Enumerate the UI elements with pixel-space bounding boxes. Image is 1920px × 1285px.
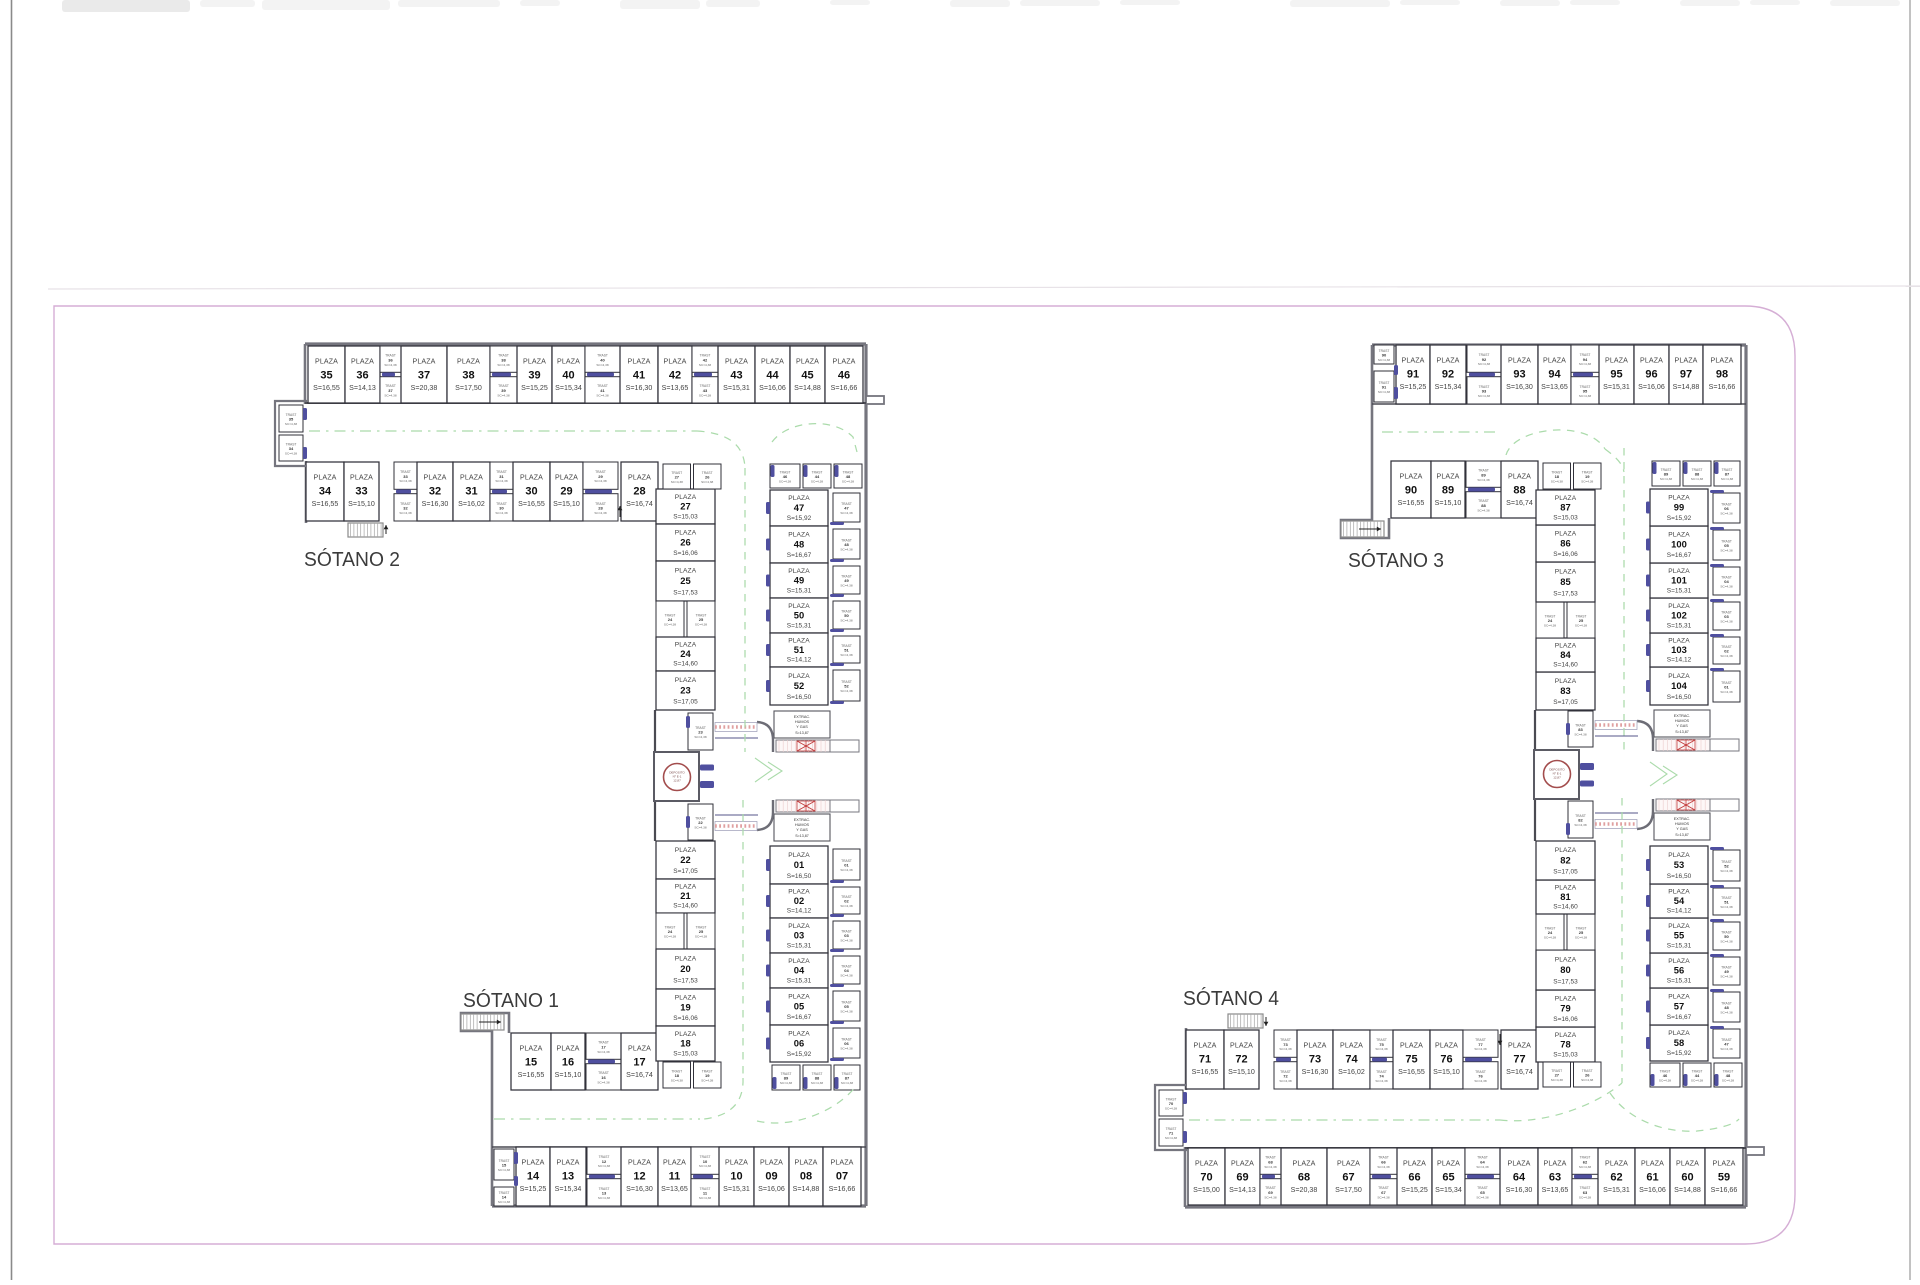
svg-text:70: 70 (1200, 1172, 1212, 1184)
svg-text:96: 96 (1645, 369, 1657, 381)
svg-text:SC=4,38: SC=4,38 (1691, 1079, 1703, 1083)
svg-text:S=16,06: S=16,06 (759, 384, 786, 392)
svg-text:S=15,31: S=15,31 (787, 622, 812, 629)
svg-text:S=15,25: S=15,25 (1400, 383, 1427, 391)
svg-text:SC=4,38: SC=4,38 (840, 904, 852, 908)
svg-text:PLAZA: PLAZA (1668, 673, 1690, 680)
svg-text:19: 19 (1585, 474, 1590, 479)
svg-text:02: 02 (794, 895, 804, 906)
svg-text:10: 10 (703, 1159, 708, 1164)
svg-text:68: 68 (1298, 1172, 1310, 1184)
svg-text:SC=4,38: SC=4,38 (840, 1047, 852, 1051)
svg-text:59: 59 (1718, 1172, 1730, 1184)
svg-text:22: 22 (698, 820, 703, 825)
svg-text:S=15,03: S=15,03 (673, 1050, 698, 1057)
svg-text:SC=4,38: SC=4,38 (497, 394, 509, 398)
svg-text:SC=4,38: SC=4,38 (695, 935, 707, 939)
svg-text:60: 60 (1681, 1172, 1693, 1184)
svg-text:S=16,74: S=16,74 (1506, 1068, 1533, 1076)
svg-text:HUMOS: HUMOS (795, 720, 810, 724)
svg-text:S=15,92: S=15,92 (1667, 515, 1692, 522)
svg-text:102: 102 (1671, 609, 1687, 620)
svg-text:PLAZA: PLAZA (788, 1031, 810, 1038)
svg-text:S=16,55: S=16,55 (518, 500, 545, 508)
svg-text:SC=4,38: SC=4,38 (1720, 620, 1732, 624)
svg-text:69: 69 (1268, 1190, 1273, 1195)
svg-text:77: 77 (1513, 1054, 1525, 1066)
svg-text:SC=4,38: SC=4,38 (596, 394, 608, 398)
svg-text:PLAZA: PLAZA (1437, 1160, 1460, 1168)
svg-text:PLAZA: PLAZA (1675, 357, 1698, 365)
svg-text:PLAZA: PLAZA (457, 358, 480, 366)
svg-text:38: 38 (462, 370, 474, 382)
svg-text:SC=4,38: SC=4,38 (842, 480, 854, 484)
svg-text:S=15,03: S=15,03 (1553, 514, 1578, 521)
svg-text:15: 15 (525, 1057, 537, 1069)
svg-text:35: 35 (320, 370, 332, 382)
svg-text:SC=4,38: SC=4,38 (840, 1010, 852, 1014)
svg-text:44: 44 (766, 370, 779, 382)
svg-text:SC=4,38: SC=4,38 (384, 394, 396, 398)
svg-text:13: 13 (602, 1191, 607, 1196)
svg-text:79: 79 (1560, 1003, 1570, 1014)
svg-text:S=15,10: S=15,10 (1433, 1068, 1460, 1076)
svg-text:57: 57 (1674, 1001, 1684, 1012)
svg-text:EXTRAC.: EXTRAC. (1674, 817, 1690, 821)
svg-text:66: 66 (1381, 1159, 1386, 1164)
svg-text:34: 34 (319, 486, 332, 498)
svg-text:S=15,25: S=15,25 (520, 1185, 547, 1193)
svg-text:SC=4,38: SC=4,38 (498, 1168, 510, 1172)
svg-text:S=16,55: S=16,55 (312, 500, 339, 508)
svg-text:PLAZA: PLAZA (1304, 1042, 1327, 1050)
svg-text:S=15,92: S=15,92 (1667, 1050, 1692, 1057)
svg-text:103: 103 (1671, 644, 1687, 655)
svg-text:PLAZA: PLAZA (1668, 852, 1690, 859)
svg-text:SC=4,38: SC=4,38 (840, 511, 852, 515)
svg-text:PLAZA: PLAZA (675, 995, 697, 1002)
svg-text:S=15,10: S=15,10 (348, 500, 375, 508)
svg-text:23: 23 (680, 685, 690, 696)
svg-text:PLAZA: PLAZA (1400, 1042, 1423, 1050)
svg-text:S=15,31: S=15,31 (787, 977, 812, 984)
svg-text:48: 48 (844, 542, 849, 547)
svg-text:32: 32 (429, 486, 441, 498)
svg-text:S=15,10: S=15,10 (1435, 499, 1462, 507)
svg-text:SC=4,38: SC=4,38 (1720, 654, 1732, 658)
svg-text:91: 91 (1382, 385, 1387, 390)
svg-text:S=14,60: S=14,60 (1553, 662, 1578, 669)
svg-text:31: 31 (499, 474, 504, 479)
svg-text:PLAZA: PLAZA (1555, 996, 1577, 1003)
svg-text:48: 48 (1724, 1005, 1729, 1010)
svg-text:S=16,06: S=16,06 (758, 1185, 785, 1193)
svg-text:PLAZA: PLAZA (1340, 1042, 1363, 1050)
svg-text:S=16,06: S=16,06 (1639, 1186, 1666, 1194)
svg-text:SC=4,38: SC=4,38 (699, 363, 711, 367)
svg-text:62: 62 (1583, 1159, 1588, 1164)
svg-text:SC=4,38: SC=4,38 (1720, 1047, 1732, 1051)
svg-text:Y GAS: Y GAS (1676, 724, 1688, 728)
svg-text:09: 09 (765, 1171, 777, 1183)
svg-text:98: 98 (1716, 369, 1728, 381)
svg-text:S=16,50: S=16,50 (787, 694, 812, 701)
svg-text:S=15,25: S=15,25 (1401, 1186, 1428, 1194)
svg-text:SC=4,38: SC=4,38 (598, 1164, 610, 1168)
svg-text:61: 61 (1646, 1172, 1658, 1184)
svg-text:04: 04 (1724, 579, 1729, 584)
svg-text:78: 78 (1560, 1038, 1570, 1049)
svg-text:88: 88 (1695, 472, 1700, 477)
svg-text:92: 92 (1482, 357, 1487, 362)
svg-text:65: 65 (1442, 1172, 1454, 1184)
svg-text:17: 17 (601, 1044, 606, 1049)
svg-text:S=17,53: S=17,53 (1553, 591, 1578, 598)
svg-text:19: 19 (680, 1002, 690, 1013)
svg-text:03: 03 (844, 933, 849, 938)
svg-text:12,87: 12,87 (1553, 776, 1561, 780)
svg-text:PLAZA: PLAZA (1508, 1160, 1531, 1168)
svg-text:S=17,50: S=17,50 (1335, 1186, 1362, 1194)
svg-text:PLAZA: PLAZA (351, 358, 374, 366)
svg-text:80: 80 (1560, 964, 1570, 975)
svg-text:37: 37 (418, 370, 430, 382)
svg-text:104: 104 (1671, 680, 1687, 691)
svg-text:S=13,87: S=13,87 (795, 731, 809, 735)
svg-text:S=15,31: S=15,31 (1667, 587, 1692, 594)
svg-text:SC=4,38: SC=4,38 (399, 479, 411, 483)
svg-text:SC=4,38: SC=4,38 (840, 974, 852, 978)
svg-text:25: 25 (699, 617, 704, 622)
svg-text:69: 69 (1236, 1172, 1248, 1184)
svg-text:37: 37 (388, 388, 393, 393)
svg-text:SC=4,38: SC=4,38 (1378, 358, 1390, 362)
svg-text:S=16,55: S=16,55 (1398, 499, 1425, 507)
svg-text:SC=4,38: SC=4,38 (1165, 1107, 1177, 1111)
svg-text:S=15,31: S=15,31 (723, 384, 750, 392)
svg-text:S=15,92: S=15,92 (787, 515, 812, 522)
svg-text:HUMOS: HUMOS (1675, 822, 1690, 826)
svg-text:PLAZA: PLAZA (1435, 1042, 1458, 1050)
svg-text:S=13,87: S=13,87 (1675, 730, 1689, 734)
svg-text:EXTRAC.: EXTRAC. (794, 818, 810, 822)
svg-text:S=13,65: S=13,65 (1542, 1186, 1569, 1194)
svg-text:27: 27 (1555, 1073, 1560, 1078)
svg-text:PLAZA: PLAZA (1555, 956, 1577, 963)
svg-text:PLAZA: PLAZA (725, 358, 748, 366)
svg-text:88: 88 (815, 1076, 820, 1081)
svg-text:SC=4,38: SC=4,38 (1551, 1078, 1563, 1082)
svg-text:SC=4,38: SC=4,38 (597, 1050, 609, 1054)
svg-text:S=16,67: S=16,67 (787, 552, 812, 559)
svg-text:08: 08 (800, 1171, 812, 1183)
svg-text:SC=4,38: SC=4,38 (1720, 940, 1732, 944)
svg-text:SC=4,38: SC=4,38 (701, 480, 713, 484)
svg-text:S=14,88: S=14,88 (793, 1185, 820, 1193)
svg-text:SC=4,38: SC=4,38 (840, 868, 852, 872)
svg-text:SC=4,38: SC=4,38 (1377, 1165, 1389, 1169)
svg-text:SC=4,38: SC=4,38 (664, 623, 676, 627)
svg-text:16: 16 (601, 1075, 606, 1080)
svg-text:PLAZA: PLAZA (664, 358, 687, 366)
svg-text:SC=4,38: SC=4,38 (495, 479, 507, 483)
svg-text:SC=4,38: SC=4,38 (1264, 1195, 1276, 1199)
svg-text:13: 13 (562, 1171, 574, 1183)
svg-text:76: 76 (1478, 1074, 1483, 1079)
svg-text:95: 95 (1583, 389, 1588, 394)
svg-text:45: 45 (801, 370, 813, 382)
svg-text:EXTRAC.: EXTRAC. (1674, 714, 1690, 718)
svg-text:S=17,50: S=17,50 (455, 384, 482, 392)
svg-text:SC=4,38: SC=4,38 (598, 1196, 610, 1200)
svg-text:PLAZA: PLAZA (788, 673, 810, 680)
svg-text:S=14,13: S=14,13 (1229, 1186, 1256, 1194)
svg-text:82: 82 (1578, 818, 1583, 823)
svg-text:93: 93 (1482, 389, 1487, 394)
svg-text:S=17,05: S=17,05 (1553, 699, 1578, 706)
svg-text:39: 39 (528, 370, 540, 382)
svg-text:66: 66 (1408, 1172, 1420, 1184)
svg-text:49: 49 (1724, 969, 1729, 974)
svg-text:SC=4,38: SC=4,38 (285, 422, 297, 426)
svg-text:SC=4,38: SC=4,38 (495, 511, 507, 515)
svg-text:38: 38 (501, 357, 506, 362)
svg-text:S=16,50: S=16,50 (1667, 873, 1692, 880)
svg-text:S=15,03: S=15,03 (1553, 1051, 1578, 1058)
svg-text:S=13,87: S=13,87 (795, 834, 809, 838)
svg-text:PLAZA: PLAZA (1713, 1160, 1736, 1168)
svg-text:PLAZA: PLAZA (1555, 847, 1577, 854)
svg-text:47: 47 (794, 502, 804, 513)
svg-text:PLAZA: PLAZA (1508, 357, 1531, 365)
svg-text:SC=4,38: SC=4,38 (694, 826, 706, 830)
svg-text:24: 24 (1548, 930, 1553, 935)
svg-text:PLAZA: PLAZA (1437, 357, 1460, 365)
svg-text:SC=4,38: SC=4,38 (384, 363, 396, 367)
svg-text:PLAZA: PLAZA (1555, 531, 1577, 538)
svg-text:32: 32 (403, 506, 408, 511)
svg-text:S=15,31: S=15,31 (1667, 977, 1692, 984)
svg-text:SC=4,38: SC=4,38 (1721, 477, 1733, 481)
svg-text:43: 43 (730, 370, 742, 382)
svg-text:PLAZA: PLAZA (1676, 1160, 1699, 1168)
svg-text:PLAZA: PLAZA (833, 358, 856, 366)
svg-text:SÓTANO 4: SÓTANO 4 (1183, 987, 1279, 1010)
svg-text:65: 65 (1480, 1190, 1485, 1195)
svg-text:87: 87 (1560, 501, 1570, 512)
svg-text:S=14,88: S=14,88 (1674, 1186, 1701, 1194)
svg-text:PLAZA: PLAZA (663, 1159, 686, 1167)
svg-text:PLAZA: PLAZA (557, 1045, 580, 1053)
svg-text:SC=4,38: SC=4,38 (1544, 936, 1556, 940)
svg-text:47: 47 (844, 506, 849, 511)
svg-text:SC=4,38: SC=4,38 (285, 452, 297, 456)
svg-text:75: 75 (1405, 1054, 1417, 1066)
svg-text:SC=4,38: SC=4,38 (1660, 477, 1672, 481)
svg-text:52: 52 (1724, 864, 1729, 869)
svg-text:Y GAS: Y GAS (796, 725, 808, 729)
svg-text:85: 85 (1560, 576, 1570, 587)
svg-text:36: 36 (388, 357, 393, 362)
svg-text:S=15,10: S=15,10 (555, 1071, 582, 1079)
svg-text:SC=4,38: SC=4,38 (840, 939, 852, 943)
svg-text:24: 24 (1548, 618, 1553, 623)
svg-text:76: 76 (1440, 1054, 1452, 1066)
svg-text:51: 51 (794, 644, 804, 655)
svg-text:S=16,50: S=16,50 (787, 873, 812, 880)
svg-text:SC=4,38: SC=4,38 (811, 1081, 823, 1085)
svg-text:06: 06 (844, 1041, 849, 1046)
svg-text:63: 63 (1583, 1190, 1588, 1195)
svg-text:50: 50 (1724, 934, 1729, 939)
svg-text:100: 100 (1671, 539, 1687, 550)
svg-text:02: 02 (1724, 649, 1729, 654)
svg-text:PLAZA: PLAZA (1231, 1160, 1254, 1168)
svg-text:S=14,12: S=14,12 (1667, 908, 1692, 915)
svg-text:SC=4,38: SC=4,38 (699, 1196, 711, 1200)
svg-text:S=15,03: S=15,03 (673, 513, 698, 520)
svg-text:SC=4,38: SC=4,38 (695, 623, 707, 627)
svg-text:67: 67 (1342, 1172, 1354, 1184)
svg-text:SC=4,38: SC=4,38 (1478, 394, 1490, 398)
svg-text:16: 16 (562, 1057, 574, 1069)
svg-text:83: 83 (1578, 727, 1583, 732)
svg-text:S=15,34: S=15,34 (555, 384, 582, 392)
svg-text:PLAZA: PLAZA (557, 1159, 580, 1167)
svg-text:52: 52 (794, 680, 804, 691)
svg-text:S=16,55: S=16,55 (1398, 1068, 1425, 1076)
svg-text:S=16,55: S=16,55 (313, 384, 340, 392)
svg-text:SC=4,38: SC=4,38 (1474, 1047, 1486, 1051)
svg-text:PLAZA: PLAZA (760, 1159, 783, 1167)
svg-text:SC=4,38: SC=4,38 (597, 1080, 609, 1084)
svg-text:72: 72 (1283, 1074, 1288, 1079)
svg-text:47: 47 (1724, 1042, 1729, 1047)
svg-text:S=15,31: S=15,31 (1603, 383, 1630, 391)
svg-text:S=16,66: S=16,66 (829, 1185, 856, 1193)
svg-text:S=16,66: S=16,66 (1709, 383, 1736, 391)
svg-text:SC=4,38: SC=4,38 (1720, 585, 1732, 589)
svg-text:SC=4,38: SC=4,38 (1579, 362, 1591, 366)
svg-text:05: 05 (794, 1001, 804, 1012)
svg-text:PLAZA: PLAZA (788, 532, 810, 539)
svg-text:56: 56 (1674, 964, 1684, 975)
svg-text:S=17,05: S=17,05 (673, 868, 698, 875)
svg-text:PLAZA: PLAZA (761, 358, 784, 366)
svg-text:SC=4,38: SC=4,38 (694, 735, 706, 739)
svg-text:02: 02 (844, 899, 849, 904)
svg-text:PLAZA: PLAZA (523, 358, 546, 366)
svg-text:SC=4,38: SC=4,38 (1720, 1011, 1732, 1015)
svg-text:SC=4,38: SC=4,38 (699, 394, 711, 398)
svg-text:19: 19 (705, 1073, 710, 1078)
svg-text:SC=4,38: SC=4,38 (841, 1081, 853, 1085)
svg-text:30: 30 (525, 486, 537, 498)
svg-text:SC=4,38: SC=4,38 (1477, 509, 1489, 513)
svg-text:PLAZA: PLAZA (1403, 1160, 1426, 1168)
svg-text:PLAZA: PLAZA (1544, 1160, 1567, 1168)
svg-text:PLAZA: PLAZA (1605, 1160, 1628, 1168)
svg-text:SC=4,38: SC=4,38 (1659, 1079, 1671, 1083)
svg-text:33: 33 (355, 486, 367, 498)
svg-text:S=15,00: S=15,00 (1193, 1186, 1220, 1194)
svg-text:SC=4,38: SC=4,38 (1720, 512, 1732, 516)
svg-text:50: 50 (844, 613, 849, 618)
svg-text:S=15,25: S=15,25 (521, 384, 548, 392)
svg-text:SC=4,38: SC=4,38 (1279, 1079, 1291, 1083)
svg-text:S=13,87: S=13,87 (1675, 833, 1689, 837)
svg-text:71: 71 (1199, 1054, 1211, 1066)
svg-text:PLAZA: PLAZA (1641, 1160, 1664, 1168)
svg-text:SC=4,38: SC=4,38 (1720, 549, 1732, 553)
svg-text:Y GAS: Y GAS (1676, 827, 1688, 831)
svg-text:41: 41 (600, 388, 605, 393)
svg-text:40: 40 (600, 357, 605, 362)
svg-text:PLAZA: PLAZA (1555, 678, 1577, 685)
svg-text:SC=4,38: SC=4,38 (1375, 1047, 1387, 1051)
svg-text:36: 36 (356, 370, 368, 382)
svg-text:SC=4,38: SC=4,38 (699, 1164, 711, 1168)
svg-text:S=15,31: S=15,31 (787, 587, 812, 594)
svg-text:PLAZA: PLAZA (314, 474, 337, 482)
svg-text:SÓTANO 1: SÓTANO 1 (463, 989, 559, 1012)
svg-text:EXTRAC.: EXTRAC. (794, 715, 810, 719)
svg-text:S=15,31: S=15,31 (1667, 622, 1692, 629)
svg-text:PLAZA: PLAZA (520, 474, 543, 482)
svg-text:95: 95 (1610, 369, 1622, 381)
svg-text:S=15,31: S=15,31 (723, 1185, 750, 1193)
svg-text:SC=4,38: SC=4,38 (1544, 624, 1556, 628)
svg-text:SC=4,38: SC=4,38 (1691, 477, 1703, 481)
svg-text:SC=4,38: SC=4,38 (498, 1200, 510, 1204)
svg-text:S=20,38: S=20,38 (411, 384, 438, 392)
svg-text:28: 28 (633, 486, 645, 498)
svg-text:PLAZA: PLAZA (1194, 1042, 1217, 1050)
svg-text:68: 68 (1268, 1159, 1273, 1164)
svg-text:PLAZA: PLAZA (788, 994, 810, 1001)
svg-text:PLAZA: PLAZA (796, 358, 819, 366)
svg-text:18: 18 (675, 1073, 680, 1078)
svg-text:S=16,30: S=16,30 (626, 1185, 653, 1193)
svg-text:PLAZA: PLAZA (628, 474, 651, 482)
svg-text:SC=4,38: SC=4,38 (1575, 936, 1587, 940)
svg-text:SC=4,38: SC=4,38 (1279, 1047, 1291, 1051)
svg-text:SC=4,38: SC=4,38 (399, 511, 411, 515)
svg-text:34: 34 (289, 446, 294, 451)
svg-text:42: 42 (669, 370, 681, 382)
svg-text:PLAZA: PLAZA (675, 530, 697, 537)
svg-text:SC=4,38: SC=4,38 (840, 689, 852, 693)
svg-text:92: 92 (1442, 369, 1454, 381)
svg-text:48: 48 (846, 474, 851, 479)
svg-text:SC=4,38: SC=4,38 (1551, 480, 1563, 484)
svg-text:05: 05 (1724, 543, 1729, 548)
svg-text:S=14,60: S=14,60 (673, 903, 698, 910)
svg-text:S=14,88: S=14,88 (794, 384, 821, 392)
svg-text:40: 40 (562, 370, 574, 382)
svg-text:S=16,02: S=16,02 (458, 500, 485, 508)
svg-text:SC=4,38: SC=4,38 (779, 480, 791, 484)
svg-text:SC=4,38: SC=4,38 (1720, 905, 1732, 909)
svg-text:PLAZA: PLAZA (628, 1045, 651, 1053)
svg-text:SC=4,38: SC=4,38 (1165, 1136, 1177, 1140)
svg-text:31: 31 (465, 486, 477, 498)
svg-text:PLAZA: PLAZA (1555, 568, 1577, 575)
svg-text:04: 04 (794, 964, 805, 975)
svg-text:03: 03 (794, 929, 804, 940)
svg-text:90: 90 (1405, 485, 1417, 497)
svg-text:S=15,10: S=15,10 (1228, 1068, 1255, 1076)
